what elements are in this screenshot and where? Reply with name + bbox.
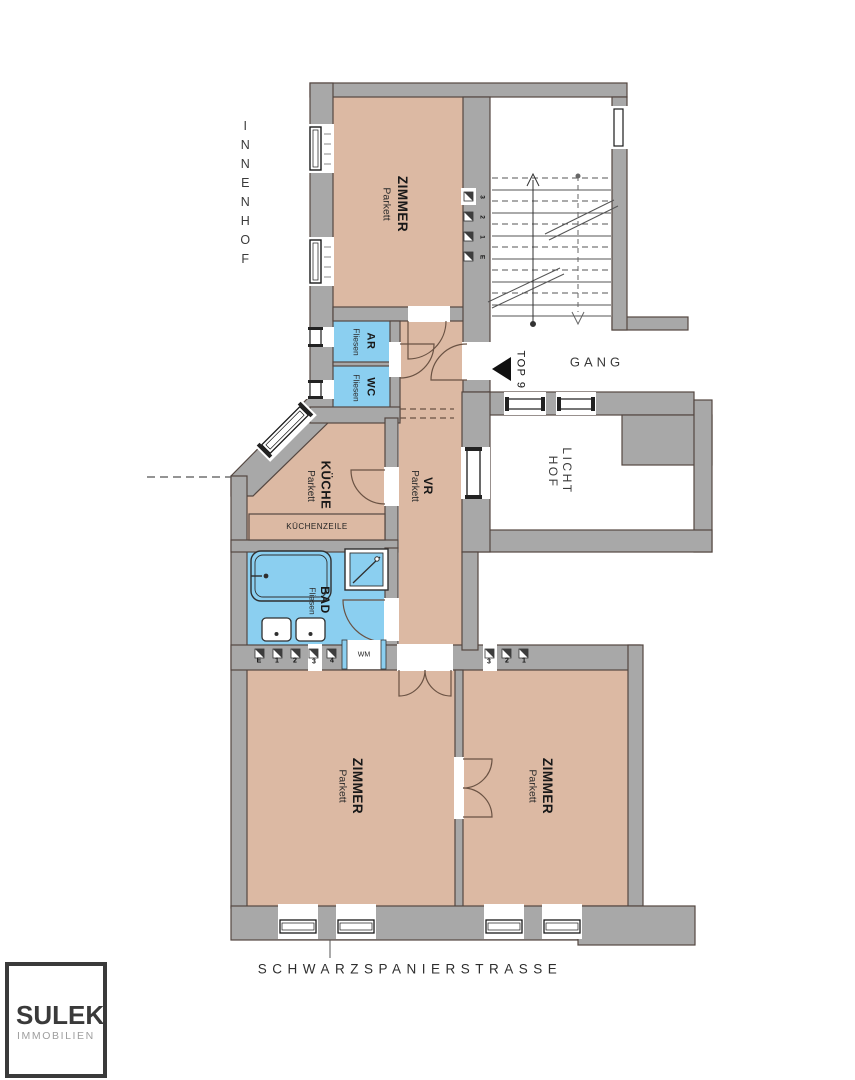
shaft-marker-label: E <box>257 658 262 665</box>
shaft-marker-label: 1 <box>275 658 279 665</box>
room-floor-ar: Fliesen <box>352 328 361 355</box>
window-street-4 <box>542 904 582 939</box>
window-vr-lichthof <box>461 447 490 499</box>
window-left-1 <box>306 124 334 173</box>
shaft-marker-icon <box>464 252 473 261</box>
sink-right <box>296 618 325 641</box>
window-street-2 <box>336 904 376 939</box>
window-wc <box>306 380 334 399</box>
room-floor-bad: Fliesen <box>308 587 317 614</box>
window-street-1 <box>278 904 318 939</box>
room-label-vr: VR <box>422 477 434 495</box>
zimmer-top-door-opening <box>408 306 450 322</box>
logo-name: SULEK <box>16 1000 104 1031</box>
shaft-marker-icon <box>464 192 473 201</box>
street-label: SCHWARZSPANIERSTRASSE <box>258 962 563 976</box>
wall-top <box>310 83 627 97</box>
room-fills <box>246 97 629 908</box>
wall-lichthof-bottom <box>478 530 712 552</box>
sink-left <box>262 618 291 641</box>
shaft-marker-label: 2 <box>505 658 509 665</box>
bad-door-opening <box>384 598 399 641</box>
wc-door-opening <box>389 342 401 377</box>
room-label-bad: BAD <box>319 586 331 614</box>
shaft-marker-icon <box>464 212 473 221</box>
room-floor-zimmer-top: Parkett <box>381 187 392 220</box>
room-floor-kueche: Parkett <box>305 470 315 502</box>
shaft-marker-label: 2 <box>293 658 297 665</box>
shaft-marker-label: 3 <box>487 659 491 666</box>
top9-label: TOP 9 <box>515 351 526 390</box>
room-label-kuechenzeile: KÜCHENZEILE <box>286 523 348 531</box>
bathtub-tap-icon <box>264 574 269 579</box>
wall-lichthof-right <box>694 400 712 552</box>
room-label-ar: AR <box>365 333 376 350</box>
room-label-wc: WC <box>365 377 376 396</box>
room-label-zimmer-right: ZIMMER <box>540 758 554 814</box>
wall-bottom-right-block <box>578 906 695 945</box>
stair-break-line-lower <box>488 268 564 308</box>
room-label-zimmer-left: ZIMMER <box>350 758 364 814</box>
wall-ar-wc-divider <box>333 362 390 366</box>
stair-treads-solid <box>492 190 611 316</box>
zimmer-double-door-opening <box>454 757 464 819</box>
wall-vr-right-lower <box>462 552 478 650</box>
stair-walkline-down <box>572 174 584 324</box>
shower-drain-icon <box>375 557 379 561</box>
shaft-marker-label: 2 <box>478 215 485 219</box>
window-ar <box>306 327 334 347</box>
floorplan-svg <box>0 0 855 1080</box>
courtyard-label: INNENHOF <box>239 119 252 271</box>
shaft-marker-icon <box>485 649 494 658</box>
shaft-marker-label: 1 <box>478 235 485 239</box>
room-floor-zimmer-left: Parkett <box>337 769 348 802</box>
company-logo: SULEK IMMOBILIEN <box>5 962 107 1078</box>
room-wc <box>333 364 391 410</box>
room-floor-wc: Fliesen <box>352 374 361 401</box>
room-label-zimmer-top: ZIMMER <box>395 176 409 232</box>
shower <box>345 549 388 590</box>
top9-arrow-icon <box>492 357 511 381</box>
shaft-marker-label: 1 <box>522 658 526 665</box>
staircase <box>488 174 618 327</box>
wall-right <box>628 645 643 908</box>
corridor-label: GANG <box>570 356 624 369</box>
room-ar <box>333 316 391 366</box>
shaft-marker-label: 3 <box>478 195 485 199</box>
room-floor-vr: Parkett <box>409 470 419 502</box>
room-label-wm: WM <box>358 652 370 659</box>
lightwell-label-line2: HOF <box>547 456 559 489</box>
floorplan-page: INNENHOF ZIMMER Parkett AR Fliesen WC Fl… <box>0 0 855 1080</box>
window-left-2 <box>306 237 334 286</box>
window-stairwell <box>611 106 628 149</box>
shaft-marker-icon <box>464 232 473 241</box>
arrow-down-icon <box>572 312 584 324</box>
window-gang-2 <box>556 392 596 415</box>
entry-door-opening <box>462 342 491 380</box>
stair-break-line-upper <box>545 200 618 240</box>
shaft-marker-label: 3 <box>312 659 316 666</box>
window-gang-1 <box>504 392 546 415</box>
room-label-kueche: KÜCHE <box>320 461 333 510</box>
stair-walkline-up <box>527 174 539 327</box>
shaft-marker-label: 4 <box>330 658 334 665</box>
lightwell-label-line1: LICHT <box>561 447 573 494</box>
kueche-door-opening <box>384 467 399 506</box>
shaft-marker-label: E <box>478 255 485 259</box>
window-street-3 <box>484 904 524 939</box>
room-floor-zimmer-right: Parkett <box>527 769 538 802</box>
logo-subtitle: IMMOBILIEN <box>17 1030 95 1042</box>
vr-zimmer-door-opening <box>397 644 453 671</box>
shaft-marker-icon <box>309 649 318 658</box>
